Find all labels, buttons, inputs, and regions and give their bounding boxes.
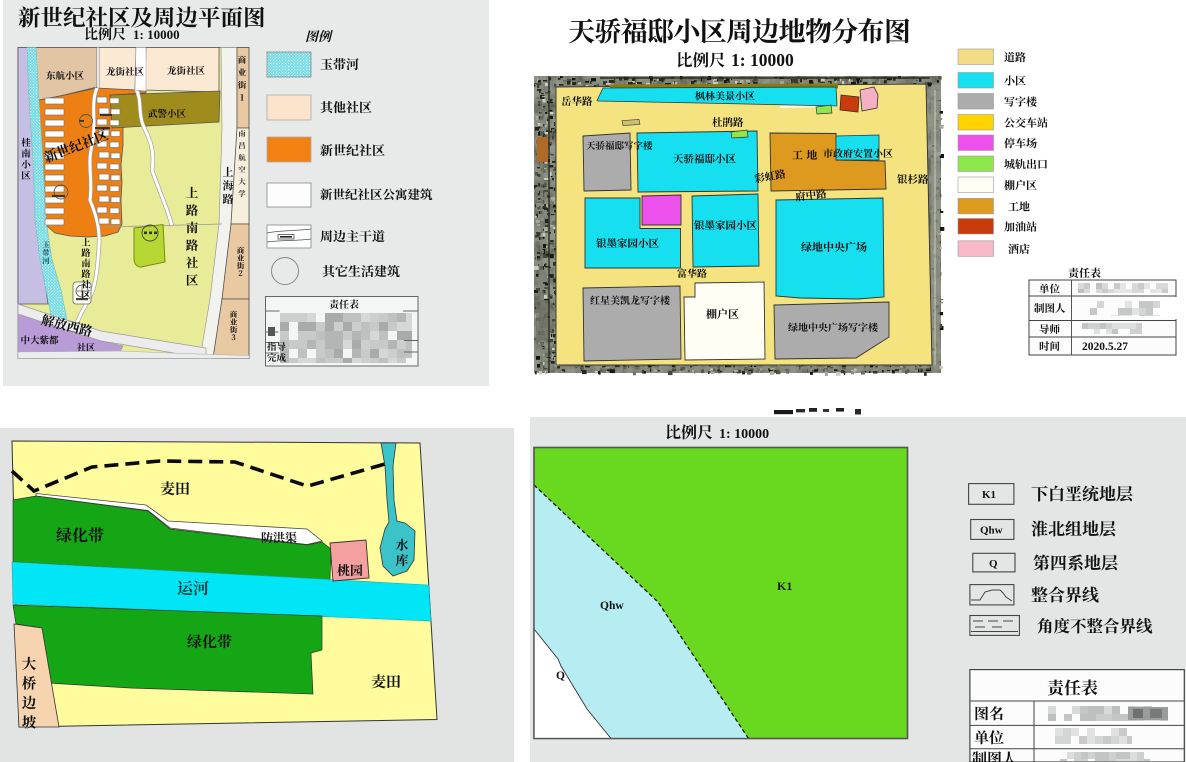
- svg-text:2020.5.27: 2020.5.27: [1082, 341, 1128, 353]
- svg-text:Qhw: Qhw: [980, 525, 1003, 537]
- svg-text:Q: Q: [556, 670, 565, 682]
- svg-text:1: 10000: 1: 10000: [731, 50, 794, 70]
- svg-text:1: 10000: 1: 10000: [719, 427, 769, 442]
- svg-text:K1: K1: [982, 489, 996, 501]
- svg-text:Q: Q: [989, 558, 998, 570]
- svg-text:1: 10000: 1: 10000: [133, 27, 180, 42]
- svg-text:Qhw: Qhw: [600, 600, 624, 612]
- svg-text:K1: K1: [777, 579, 792, 593]
